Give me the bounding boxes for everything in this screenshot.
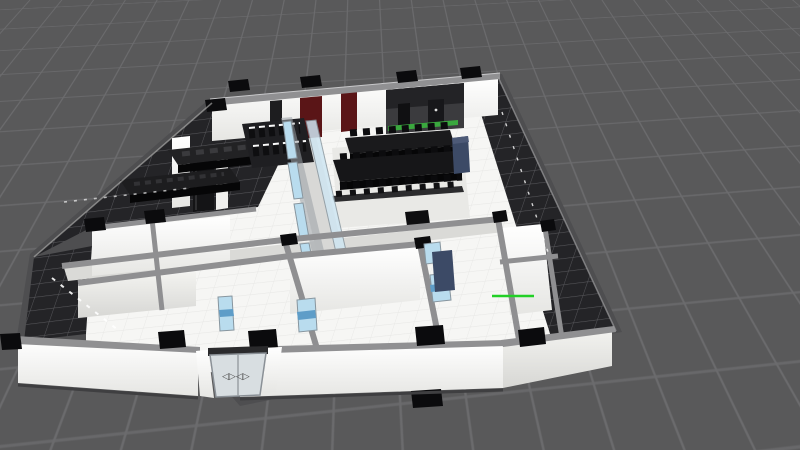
wall-cap[interactable] [158, 330, 186, 349]
entrance-lobby[interactable]: ◁▷◁▷ [196, 346, 282, 398]
appliance-1[interactable] [398, 103, 410, 127]
wall-cap[interactable] [205, 98, 227, 112]
navy-desk[interactable] [432, 250, 455, 292]
appliance-light-dot [435, 109, 438, 112]
wall-cap[interactable] [492, 210, 508, 223]
wall-cap[interactable] [540, 219, 556, 232]
floorplan-scene[interactable]: ◁▷◁▷ [0, 0, 800, 450]
wall-cap[interactable] [280, 233, 298, 246]
door-decal-arrows-icon: ◁▷◁▷ [222, 372, 250, 382]
window-blue-band [219, 309, 234, 317]
viewport-3d[interactable]: ◁▷◁▷ [0, 0, 800, 450]
wall-cap[interactable] [0, 333, 22, 350]
wall-cap[interactable] [144, 209, 166, 224]
wall-cap[interactable] [300, 75, 322, 88]
wall-cap[interactable] [460, 66, 482, 79]
shelf-display[interactable] [242, 118, 314, 168]
wall-cap[interactable] [415, 325, 445, 346]
wall-cap[interactable] [396, 70, 418, 83]
wall-cap[interactable] [518, 327, 546, 347]
accent-wall-red-2[interactable] [341, 92, 357, 132]
appliance-2[interactable] [428, 99, 444, 125]
wall-cap[interactable] [84, 217, 106, 232]
wall-cap[interactable] [228, 79, 250, 92]
